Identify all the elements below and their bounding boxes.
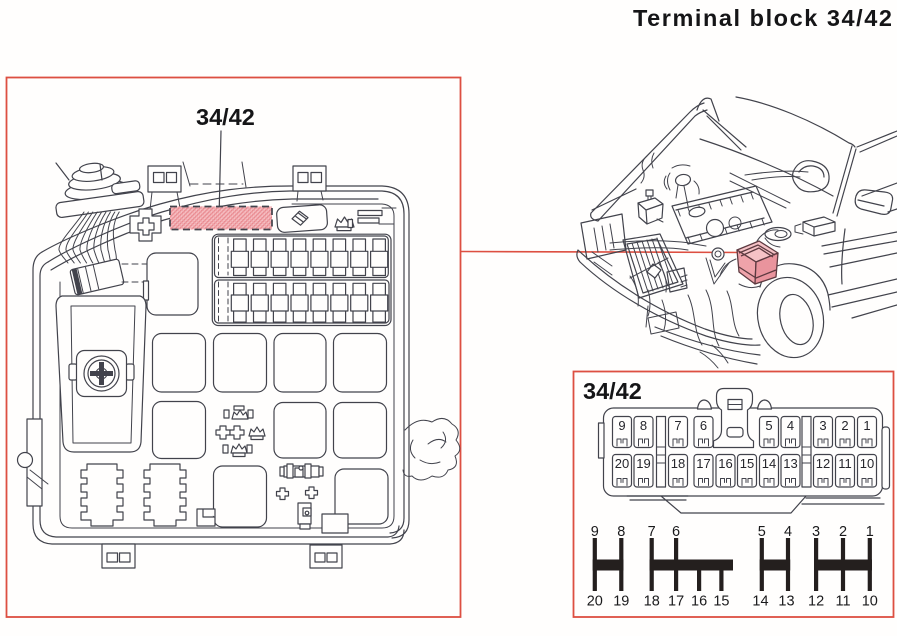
- svg-text:34/42: 34/42: [196, 104, 255, 130]
- svg-text:3: 3: [812, 524, 820, 540]
- svg-text:34/42: 34/42: [583, 378, 642, 404]
- svg-text:6: 6: [672, 524, 680, 540]
- svg-text:Terminal block 34/42: Terminal block 34/42: [633, 5, 893, 31]
- svg-text:5: 5: [765, 418, 772, 433]
- svg-text:20: 20: [587, 594, 603, 610]
- svg-text:7: 7: [674, 418, 681, 433]
- svg-text:14: 14: [762, 456, 776, 471]
- svg-text:11: 11: [835, 594, 850, 610]
- svg-text:3: 3: [819, 418, 826, 433]
- svg-text:13: 13: [778, 594, 794, 610]
- svg-text:17: 17: [696, 456, 710, 471]
- svg-text:8: 8: [617, 524, 625, 540]
- svg-text:8: 8: [640, 418, 647, 433]
- svg-text:2: 2: [841, 418, 848, 433]
- svg-text:15: 15: [713, 594, 729, 610]
- svg-text:16: 16: [691, 594, 707, 610]
- svg-text:12: 12: [816, 456, 830, 471]
- svg-text:2: 2: [839, 524, 847, 540]
- svg-text:5: 5: [758, 524, 766, 540]
- svg-text:9: 9: [591, 524, 599, 540]
- svg-text:10: 10: [862, 594, 878, 610]
- svg-text:10: 10: [860, 456, 874, 471]
- svg-text:17: 17: [668, 594, 684, 610]
- svg-text:19: 19: [636, 456, 650, 471]
- svg-text:15: 15: [740, 456, 754, 471]
- svg-text:18: 18: [644, 594, 660, 610]
- svg-text:18: 18: [671, 456, 685, 471]
- svg-text:12: 12: [808, 594, 824, 610]
- svg-text:4: 4: [787, 418, 794, 433]
- svg-text:13: 13: [783, 456, 797, 471]
- svg-text:11: 11: [838, 456, 852, 471]
- svg-text:20: 20: [615, 456, 629, 471]
- svg-text:19: 19: [613, 594, 629, 610]
- svg-text:6: 6: [700, 418, 707, 433]
- svg-text:7: 7: [648, 524, 656, 540]
- svg-text:9: 9: [618, 418, 625, 433]
- svg-text:1: 1: [863, 418, 870, 433]
- svg-text:4: 4: [784, 524, 792, 540]
- svg-text:14: 14: [752, 594, 768, 610]
- svg-text:16: 16: [718, 456, 732, 471]
- svg-text:1: 1: [866, 524, 874, 540]
